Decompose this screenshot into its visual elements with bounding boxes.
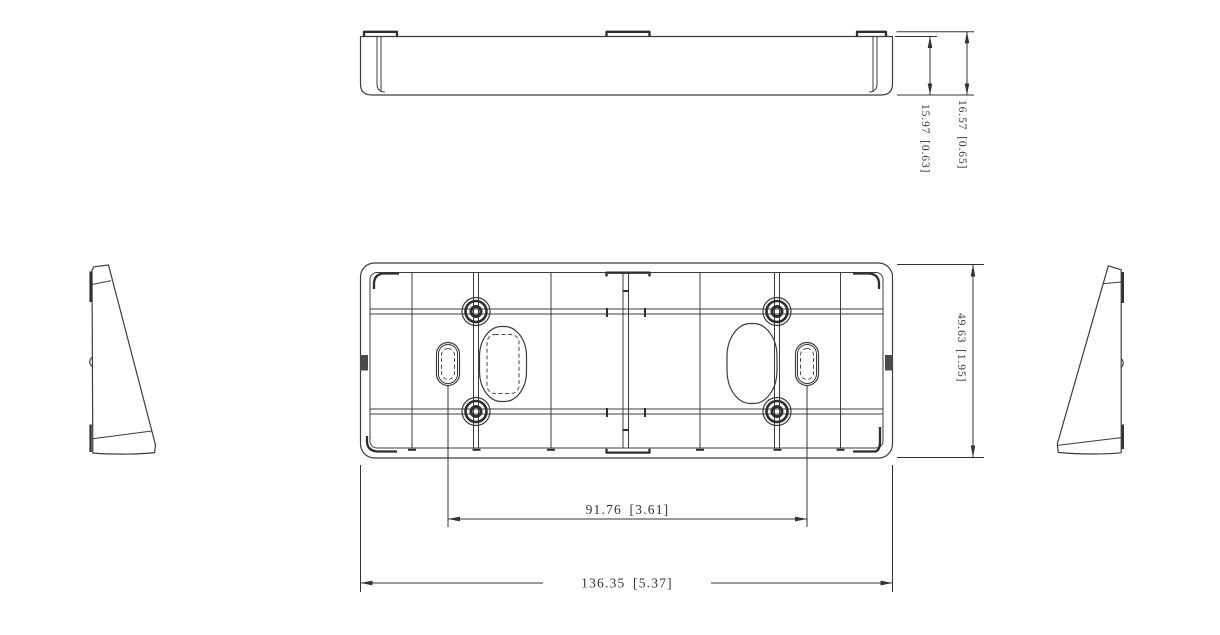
screw-boss-top-right — [763, 298, 791, 326]
dimension-profile-overall-height: 16.57 [0.65] — [897, 32, 975, 170]
plate-outer-outline — [361, 263, 893, 458]
dimension-text: 136.35 [5.37] — [581, 576, 673, 591]
right-end-top-band — [1104, 282, 1121, 284]
bottom-edge-tab — [607, 449, 650, 453]
horizontal-ribs — [370, 309, 883, 414]
keyhole-slot-right — [796, 343, 819, 386]
left-edge-hatch-tab — [360, 355, 368, 371]
profile-tab-right — [857, 32, 886, 37]
left-end-top-band — [92, 281, 111, 285]
arrowhead-down — [928, 84, 933, 96]
keyhole-slot-left — [437, 343, 460, 386]
screw-boss-bottom-left — [462, 398, 490, 426]
arrowhead-up — [971, 265, 976, 277]
arrowhead-right — [881, 581, 893, 586]
left-end-bottom-band — [92, 431, 152, 439]
right-end-view — [1057, 266, 1123, 454]
right-edge-hatch-tab — [885, 355, 893, 371]
dimension-text: 15.97 [0.63] — [919, 104, 931, 173]
top-profile-view — [361, 32, 893, 95]
arrowhead-right — [795, 517, 807, 522]
right-end-bottom-band — [1059, 438, 1122, 446]
dimension-overall-width: 136.35 [5.37] — [361, 465, 893, 592]
cable-cutout-right — [727, 324, 777, 404]
right-end-outline — [1057, 266, 1121, 454]
dimension-overall-height: 49.63 [1.95] — [897, 265, 984, 458]
left-end-view — [90, 265, 156, 454]
arrowhead-down — [965, 84, 970, 96]
left-end-outline — [92, 265, 156, 454]
plate-inner-frame — [370, 273, 883, 449]
screw-boss-bottom-right — [763, 398, 791, 426]
arrowhead-down — [971, 446, 976, 458]
arrowhead-up — [965, 32, 970, 44]
dimension-text: 91.76 [3.61] — [586, 502, 670, 517]
profile-tab-center — [607, 32, 650, 37]
dimension-slot-spacing: 91.76 [3.61] — [448, 386, 807, 527]
mounting-plate-back-view — [360, 263, 893, 458]
left-end-notch — [90, 358, 92, 367]
profile-outline — [361, 37, 893, 96]
screw-boss-top-left — [462, 298, 490, 326]
profile-tab-left — [364, 32, 397, 37]
arrowhead-left — [361, 581, 373, 586]
arrowhead-up — [928, 37, 933, 49]
bracket-drawing-svg: 15.97 [0.63] 16.57 [0.65] — [0, 0, 1220, 635]
cable-cutout-left — [480, 327, 527, 402]
dimension-text: 49.63 [1.95] — [955, 313, 967, 382]
technical-drawing-page: 15.97 [0.63] 16.57 [0.65] — [0, 0, 1220, 635]
dimension-text: 16.57 [0.65] — [956, 100, 968, 169]
arrowhead-left — [448, 517, 460, 522]
